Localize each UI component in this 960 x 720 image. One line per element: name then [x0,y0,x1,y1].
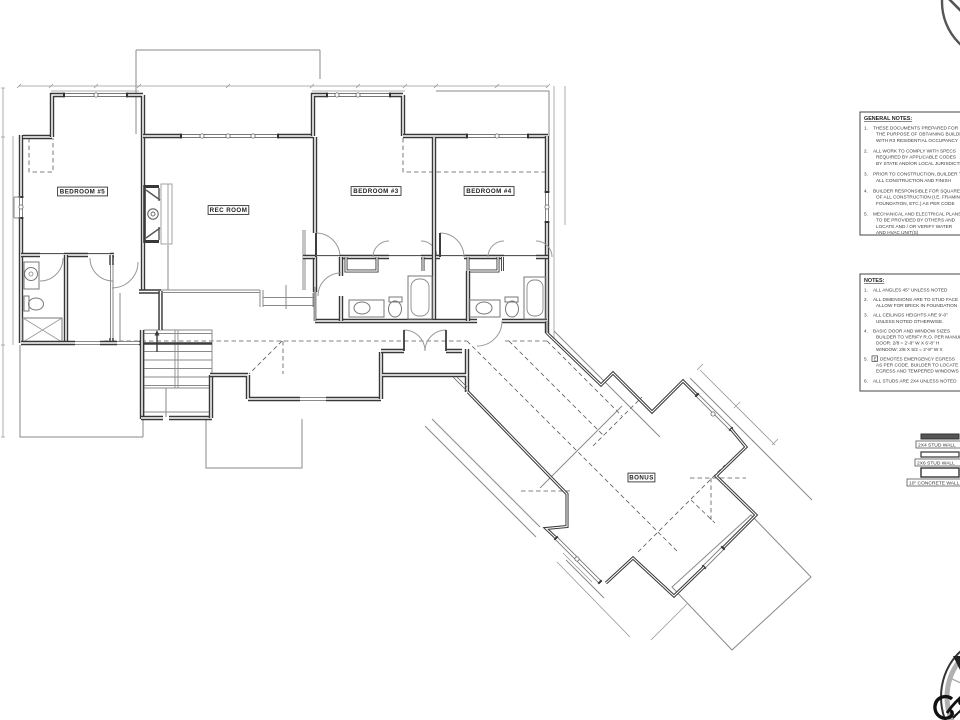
svg-text:THESE DOCUMENTS PREPARED FOR: THESE DOCUMENTS PREPARED FOR [873,126,959,131]
svg-text:2X4 STUD WALL: 2X4 STUD WALL [918,443,956,449]
svg-text:1.: 1. [864,288,868,293]
svg-text:ALL ANGLES 45° UNLESS NOTED: ALL ANGLES 45° UNLESS NOTED [873,288,948,293]
svg-text:THE PURPOSE OF OBTAINING BUILD: THE PURPOSE OF OBTAINING BUILDING [876,132,960,137]
svg-text:REQUIRED BY APPLICABLE CODES: REQUIRED BY APPLICABLE CODES [876,155,956,160]
svg-text:NOTES:: NOTES: [864,278,885,284]
svg-text:UNLESS NOTED OTHERWISE.: UNLESS NOTED OTHERWISE. [876,319,943,324]
svg-text:OF ALL CONSTRUCTION (I.E. FRAM: OF ALL CONSTRUCTION (I.E. FRAMING [876,195,960,200]
svg-text:2.: 2. [864,149,868,154]
svg-text:1.: 1. [864,126,868,131]
svg-text:ALLOW FOR BRICK IN FOUNDATION: ALLOW FOR BRICK IN FOUNDATION [876,303,957,308]
svg-text:ALL DIMENSIONS ARE TO STUD FAC: ALL DIMENSIONS ARE TO STUD FACE [873,297,958,302]
svg-text:BUILDER RESPONSIBLE FOR SQUARE: BUILDER RESPONSIBLE FOR SQUARE [873,189,960,194]
svg-text:4.: 4. [864,189,868,194]
svg-text:2X6 STUD WALL: 2X6 STUD WALL [917,461,955,467]
svg-text:3.: 3. [864,313,868,318]
svg-text:MECHANICAL AND ELECTRICAL PLAN: MECHANICAL AND ELECTRICAL PLANS [873,212,960,217]
svg-text:ALL WORK TO COMPLY WITH SPECS: ALL WORK TO COMPLY WITH SPECS [873,149,956,154]
svg-text:6.: 6. [864,378,868,383]
svg-text:ALL CEILINGS HEIGHTS ARE 9'-0": ALL CEILINGS HEIGHTS ARE 9'-0" [873,313,948,318]
svg-text:BEDROOM #5: BEDROOM #5 [60,189,106,196]
svg-text:DENOTES EMERGENCY EGRESS: DENOTES EMERGENCY EGRESS [880,356,955,361]
svg-text:AND HVAC UNIT(S): AND HVAC UNIT(S) [876,230,919,235]
svg-text:AS PER CODE. BUILDER TO LOCATE: AS PER CODE. BUILDER TO LOCATE [876,363,958,368]
svg-text:4.: 4. [864,328,868,333]
svg-text:5.: 5. [864,356,868,361]
svg-text:ALL STUDS ARE 2X4 UNLESS NOTED: ALL STUDS ARE 2X4 UNLESS NOTED [873,378,957,383]
svg-text:PRIOR TO CONSTRUCTION, BUILDER: PRIOR TO CONSTRUCTION, BUILDER TO [873,172,960,177]
svg-text:BY STATE AND/OR LOCAL JURISDIC: BY STATE AND/OR LOCAL JURISDICTION [876,161,960,166]
svg-text:DOOR: 2/8 = 2'-8" W X 6'-8" H: DOOR: 2/8 = 2'-8" W X 6'-8" H [876,341,939,346]
svg-text:ALL CONSTRUCTION AND FINISH: ALL CONSTRUCTION AND FINISH [876,178,951,183]
svg-text:WINDOW: 2/8 X 5/2 = 2'-8" W X: WINDOW: 2/8 X 5/2 = 2'-8" W X [876,347,944,352]
svg-text:2.: 2. [864,297,868,302]
svg-text:E: E [874,356,877,361]
svg-text:REC ROOM: REC ROOM [210,207,248,214]
svg-text:GENERAL NOTES:: GENERAL NOTES: [864,116,912,122]
svg-text:LOCATE AND / OR VERIFY WATER: LOCATE AND / OR VERIFY WATER [876,224,953,229]
svg-text:BEDROOM #4: BEDROOM #4 [466,188,512,195]
svg-text:FOUNDATION, ETC.) AS PER CODE: FOUNDATION, ETC.) AS PER CODE [876,201,955,206]
svg-text:10" CONCRETE WALL: 10" CONCRETE WALL [909,481,960,487]
svg-text:BASIC DOOR AND WINDOW SIZES: BASIC DOOR AND WINDOW SIZES [873,328,950,333]
svg-text:BEDROOM #3: BEDROOM #3 [353,188,399,195]
svg-text:BUILDER TO VERIFY R.O. PER MAN: BUILDER TO VERIFY R.O. PER MANUF [876,335,960,340]
svg-text:5.: 5. [864,212,868,217]
svg-text:WITH R3 RESIDENTIAL OCCUPANCY: WITH R3 RESIDENTIAL OCCUPANCY [876,138,959,143]
svg-text:BONUS: BONUS [629,475,654,482]
svg-text:3.: 3. [864,172,868,177]
svg-text:EGRESS AND TEMPERED WINDOWS: EGRESS AND TEMPERED WINDOWS [876,369,959,374]
svg-text:TO BE PROVIDED BY OTHERS AND: TO BE PROVIDED BY OTHERS AND [876,218,956,223]
